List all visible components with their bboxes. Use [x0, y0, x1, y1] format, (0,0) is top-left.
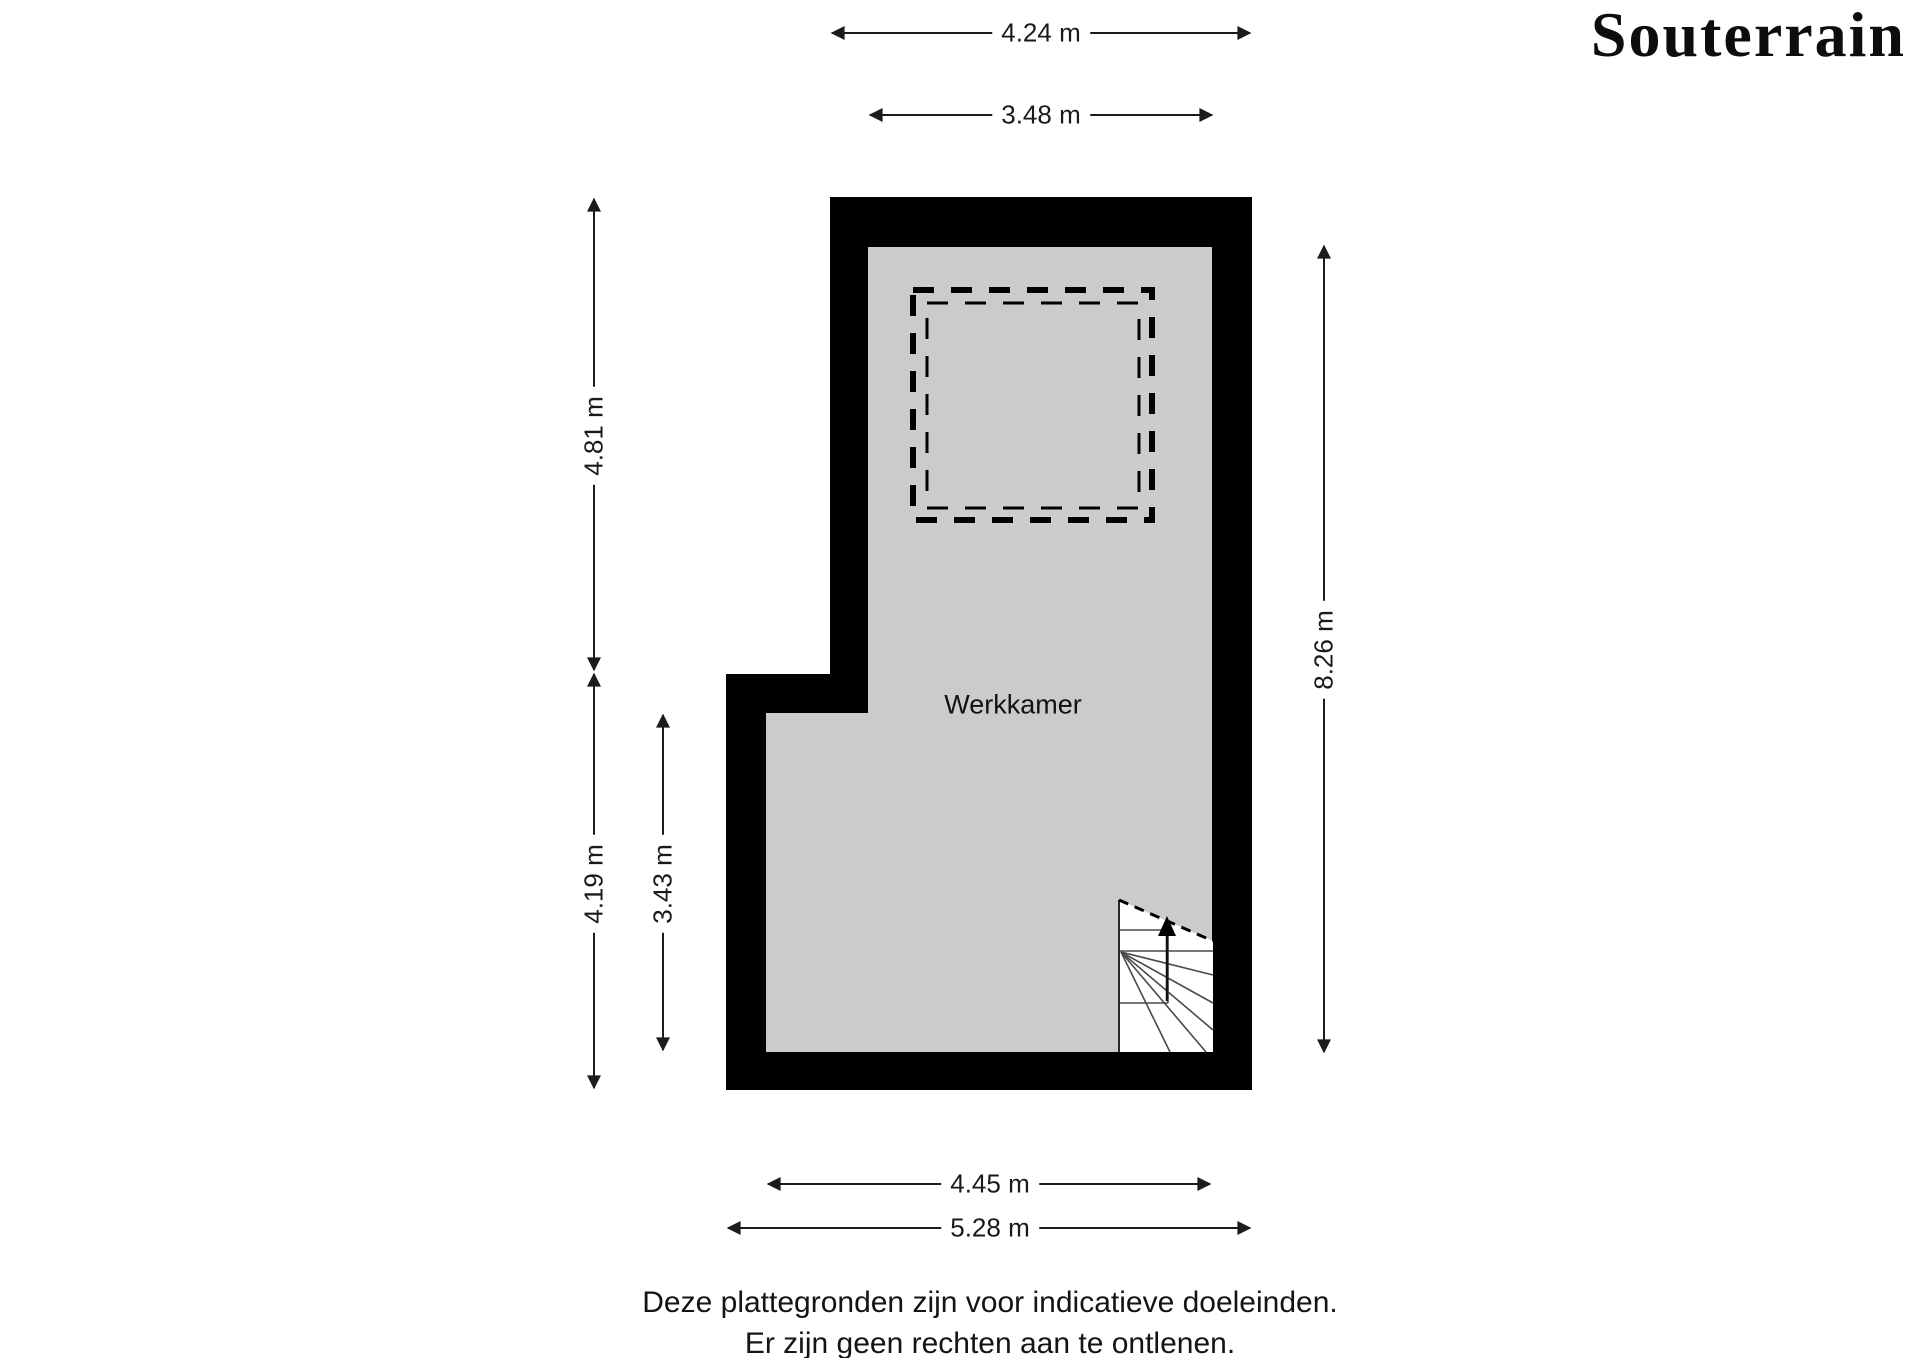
- dimension-left-lower-inner: 3.43 m: [648, 835, 679, 933]
- disclaimer-text: Deze plattegronden zijn voor indicatieve…: [642, 1282, 1337, 1358]
- dimension-right: 8.26 m: [1309, 601, 1340, 699]
- dimension-bottom-inner: 4.45 m: [941, 1169, 1039, 1200]
- floorplan-drawing: [0, 0, 1920, 1358]
- dimension-left-upper: 4.81 m: [579, 387, 610, 485]
- room-name-label: Werkkamer: [944, 690, 1082, 721]
- floorplan-page: Souterrain 4.24 m 3.48 m 4.81 m 4.19 m 3…: [0, 0, 1920, 1358]
- dimension-bottom-outer: 5.28 m: [941, 1213, 1039, 1244]
- dimension-top-outer: 4.24 m: [992, 18, 1090, 49]
- page-title: Souterrain: [1591, 1, 1906, 68]
- dimension-top-inner: 3.48 m: [992, 100, 1090, 131]
- dimension-left-lower: 4.19 m: [579, 835, 610, 933]
- disclaimer-line-1: Deze plattegronden zijn voor indicatieve…: [642, 1282, 1337, 1323]
- disclaimer-line-2: Er zijn geen rechten aan te ontlenen.: [642, 1323, 1337, 1358]
